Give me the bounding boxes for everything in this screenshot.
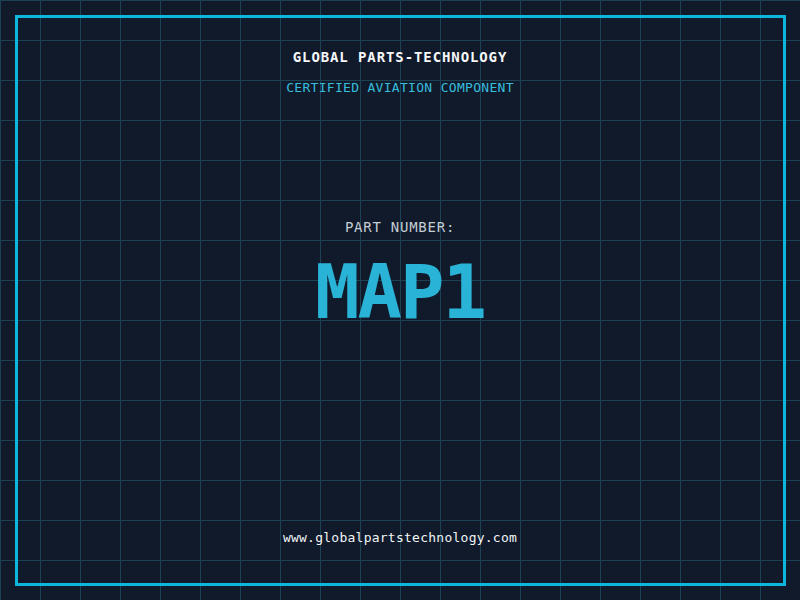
blueprint-screen: GLOBAL PARTS-TECHNOLOGY CERTIFIED AVIATI… [0,0,800,600]
website-url: www.globalpartstechnology.com [0,530,800,545]
part-number-label: PART NUMBER: [0,219,800,235]
part-number-value: MAP1 [0,250,800,336]
company-title: GLOBAL PARTS-TECHNOLOGY [0,49,800,65]
certification-tagline: CERTIFIED AVIATION COMPONENT [0,80,800,95]
